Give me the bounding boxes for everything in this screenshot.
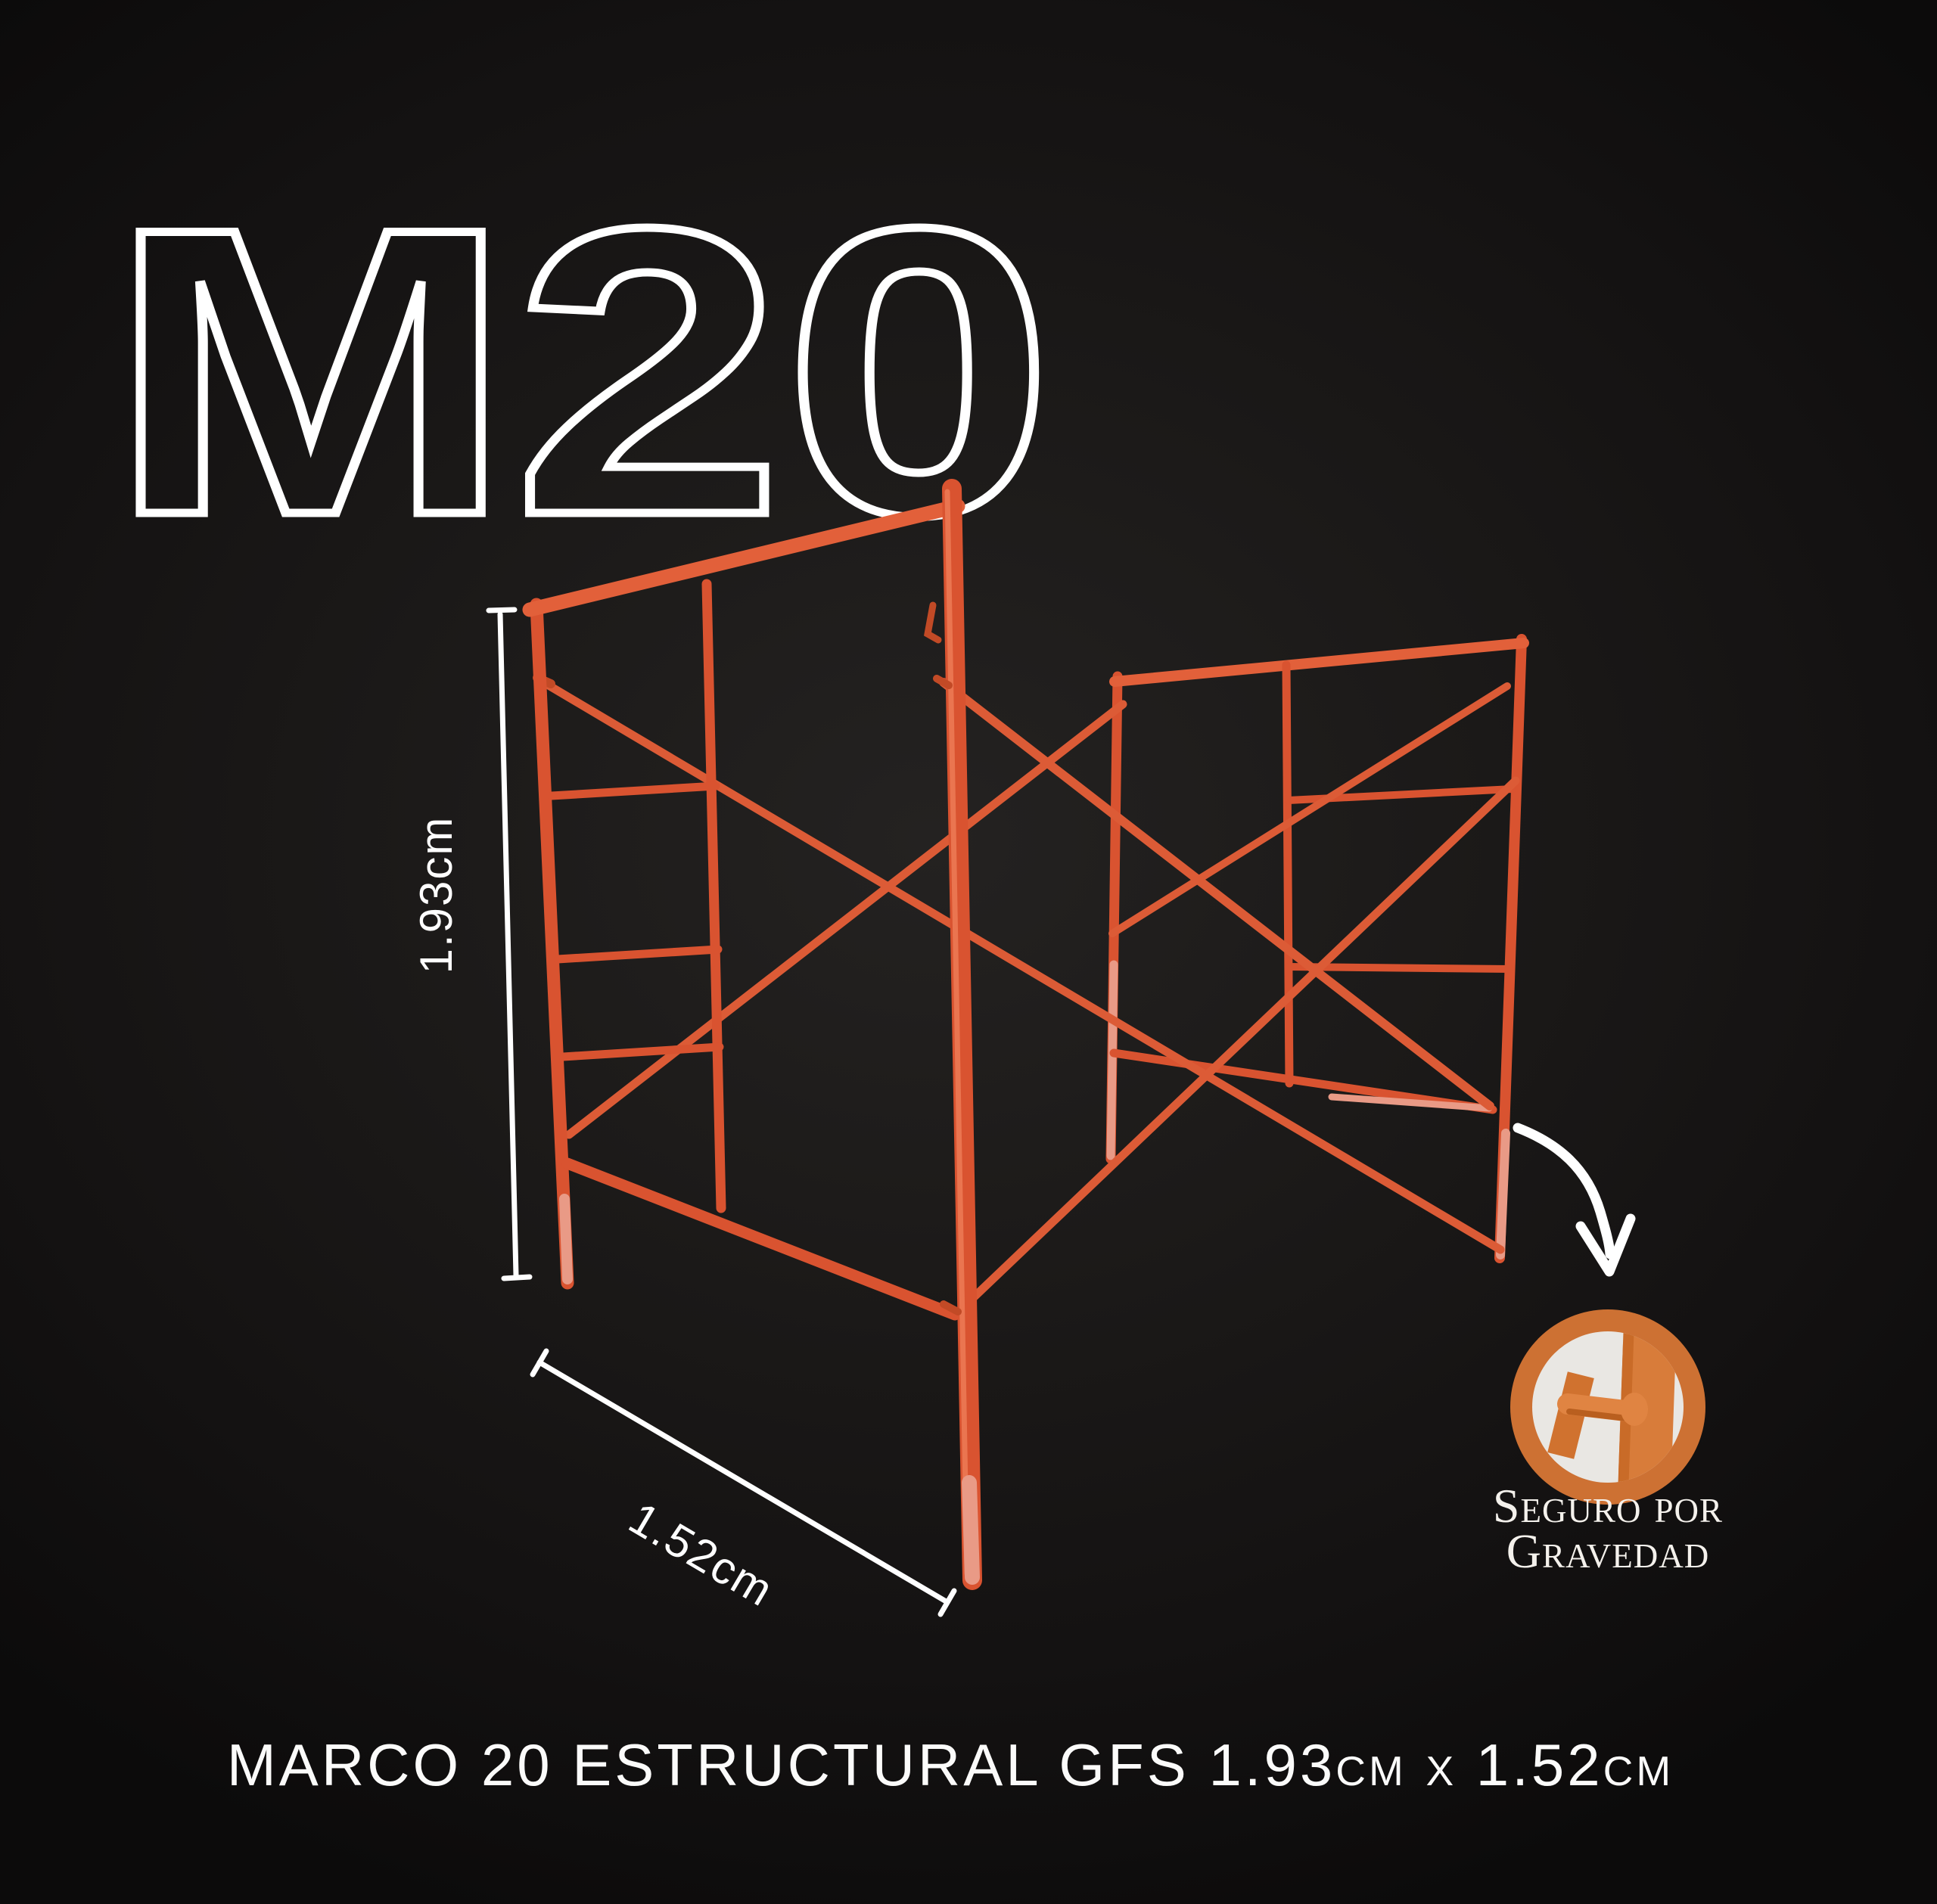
near-left-post: [536, 604, 567, 1283]
near-mid-rail: [707, 584, 721, 1208]
far-left-post-pink-section: [1111, 964, 1114, 1156]
height-dimension-cap-bottom: [504, 1277, 530, 1278]
model-code-text: M20: [108, 144, 1054, 600]
height-dimension-cap-top: [489, 610, 515, 610]
width-dimension: 1.52cm: [533, 1351, 954, 1617]
near-center-post-pink-foot: [969, 1483, 972, 1577]
near-bottom-bar: [567, 1163, 955, 1315]
gravity-pin-hook: [928, 605, 938, 640]
near-rung-2: [558, 949, 718, 959]
badge-caption-line2: Gravedad: [1506, 1524, 1709, 1578]
product-title: MARCO 20 ESTRUCTURAL GFS 1.93cm x 1.52cm: [227, 1732, 1674, 1798]
cross-brace-left-bottom: [569, 704, 1123, 1135]
far-mid-rail: [1286, 665, 1289, 1083]
scaffold-photo: [530, 489, 1524, 1580]
height-dimension-label: 1.93cm: [411, 816, 462, 974]
height-dimension: 1.93cm: [411, 610, 530, 1278]
badge-pin-head: [1621, 1393, 1648, 1426]
scaffold-far-frame: [1111, 639, 1524, 1258]
far-top-bar: [1115, 643, 1524, 682]
poster-canvas: M20: [0, 0, 1937, 1904]
height-dimension-line: [500, 614, 516, 1275]
near-left-post-pink-foot: [564, 1199, 567, 1279]
near-rung-3: [563, 1047, 720, 1057]
width-dimension-label: 1.52cm: [620, 1492, 782, 1617]
far-right-post-pink-section: [1500, 1133, 1506, 1255]
far-frame-diagonal: [1112, 686, 1507, 933]
curved-arrow-icon: [1518, 1128, 1631, 1272]
curved-arrow-shaft: [1518, 1128, 1610, 1254]
width-dimension-cap-right: [941, 1591, 954, 1614]
product-spec-poster: M20: [0, 0, 1937, 1904]
near-rung-1: [552, 786, 716, 796]
scaffold-near-frame: [530, 489, 972, 1580]
gravity-lock-badge: Seguro por Gravedad: [1493, 1309, 1723, 1578]
cross-brace-right-bottom: [959, 781, 1516, 1311]
